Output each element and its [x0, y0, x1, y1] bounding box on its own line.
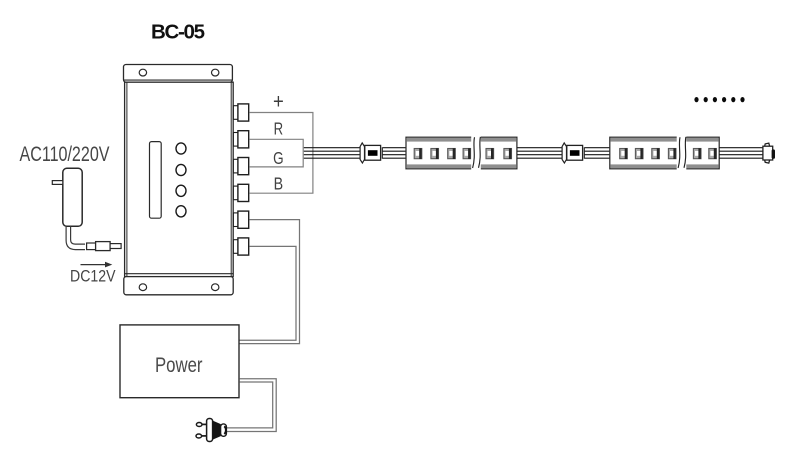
svg-text:G: G [273, 148, 284, 168]
svg-text:DC12V: DC12V [70, 268, 116, 286]
svg-text:AC110/220V: AC110/220V [20, 142, 110, 166]
svg-text:+: + [273, 91, 284, 114]
svg-text:R: R [274, 119, 284, 139]
svg-text:BC-05: BC-05 [151, 21, 205, 44]
svg-text:Power: Power [155, 354, 203, 377]
svg-text:B: B [274, 174, 284, 194]
